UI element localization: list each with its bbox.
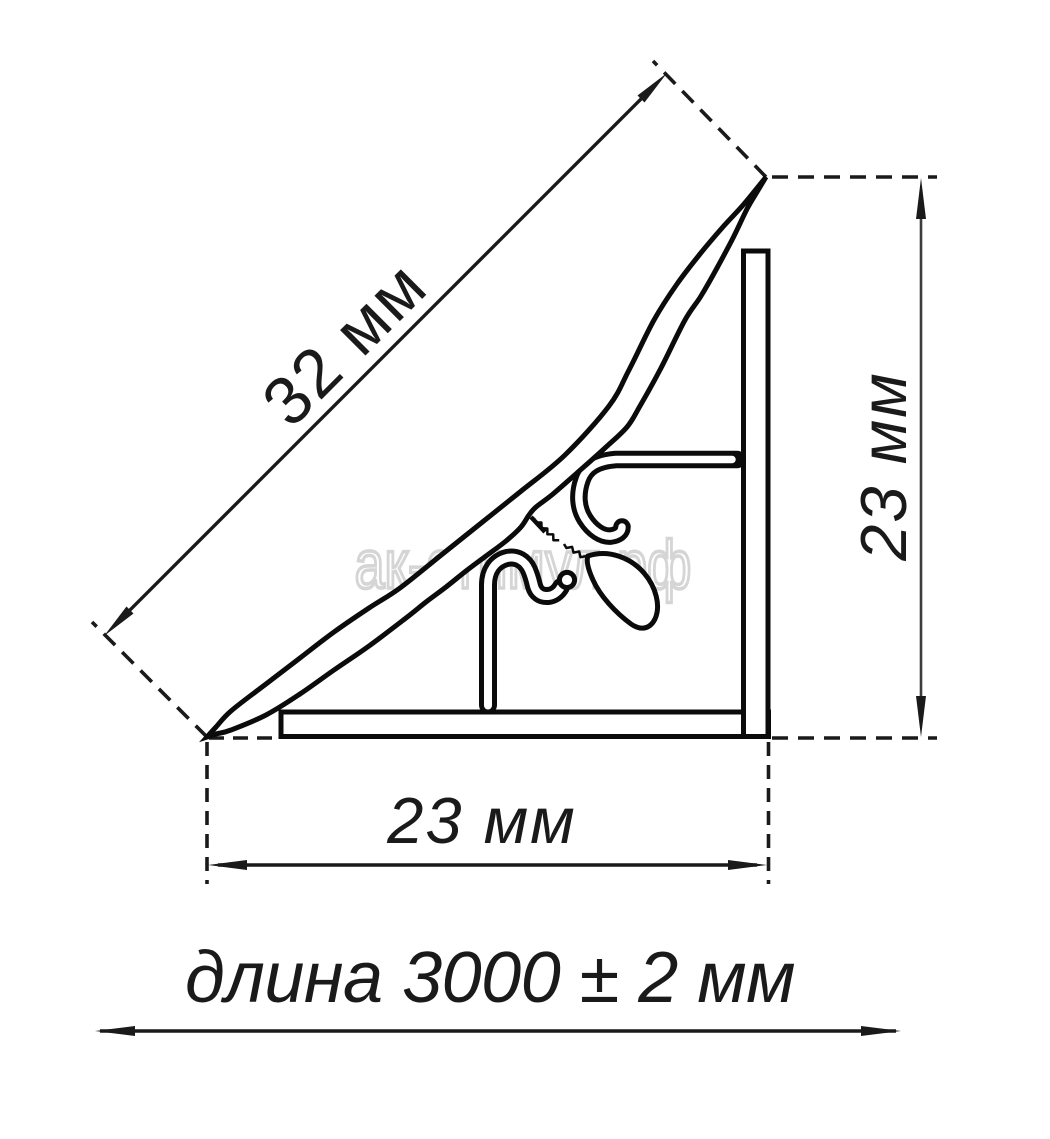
svg-text:32 мм: 32 мм [248, 247, 442, 441]
svg-text:длина 3000 ± 2 мм: длина 3000 ± 2 мм [185, 938, 795, 1018]
svg-text:23 мм: 23 мм [847, 371, 920, 561]
svg-text:23 мм: 23 мм [386, 784, 576, 857]
